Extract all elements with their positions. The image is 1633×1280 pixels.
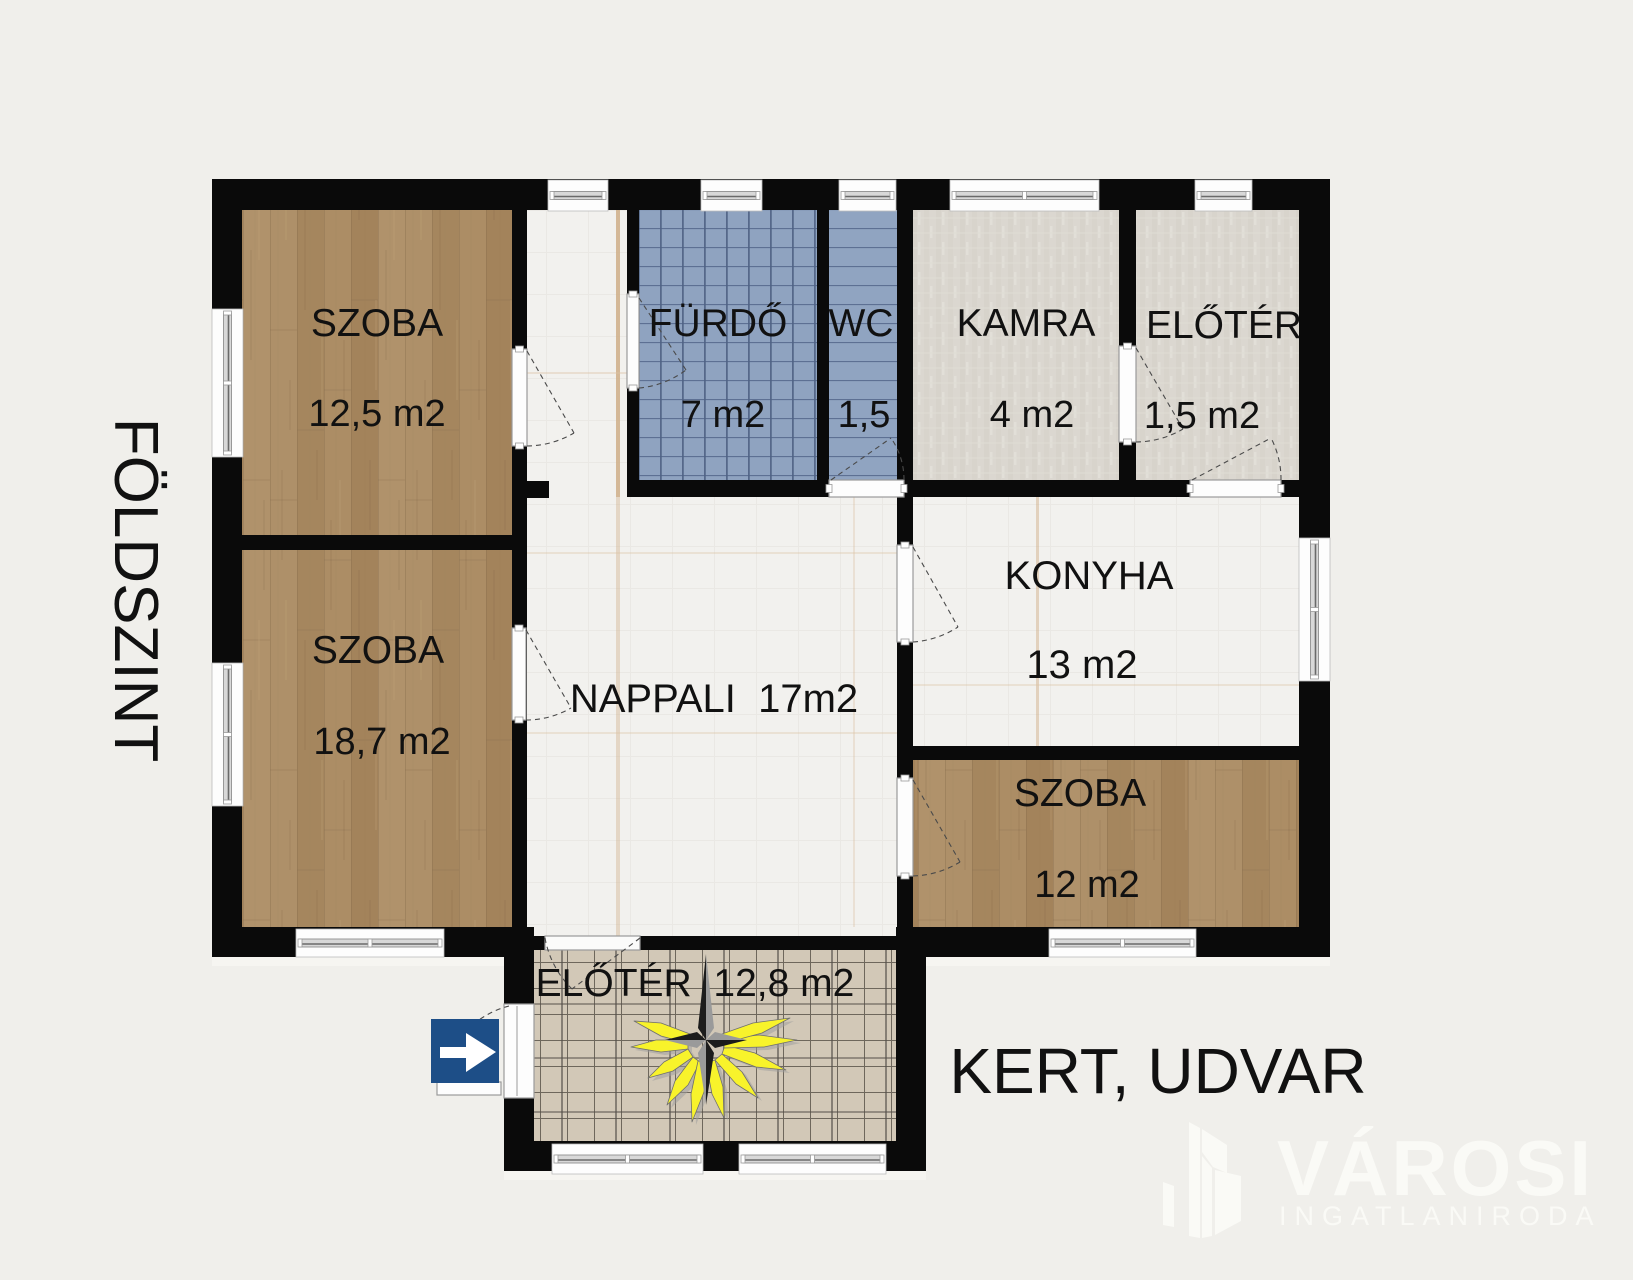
svg-text:KONYHA: KONYHA [1005,554,1174,598]
svg-text:7 m2: 7 m2 [681,394,765,436]
svg-text:VÁROSI: VÁROSI [1277,1124,1594,1212]
svg-text:KERT, UDVAR: KERT, UDVAR [949,1035,1366,1107]
svg-text:18,7 m2: 18,7 m2 [313,721,450,763]
svg-text:SZOBA: SZOBA [311,302,443,345]
svg-text:12,5 m2: 12,5 m2 [308,393,445,435]
svg-text:4 m2: 4 m2 [990,394,1074,436]
svg-text:SZOBA: SZOBA [1014,772,1146,815]
svg-text:NAPPALI 17m2: NAPPALI 17m2 [570,677,858,721]
svg-text:FÜRDŐ: FÜRDŐ [649,302,788,345]
svg-text:SZOBA: SZOBA [312,629,444,672]
svg-text:ELŐTÉR 12,8 m2: ELŐTÉR 12,8 m2 [536,962,855,1005]
svg-text:12 m2: 12 m2 [1034,864,1140,906]
svg-text:1,5: 1,5 [838,394,891,436]
svg-text:FÖLDSZINT: FÖLDSZINT [101,418,170,762]
svg-text:WC: WC [829,302,894,345]
svg-text:ELŐTÉR: ELŐTÉR [1146,304,1302,347]
svg-text:INGATLANIRODA: INGATLANIRODA [1279,1201,1602,1231]
svg-text:KAMRA: KAMRA [957,302,1096,345]
svg-text:1,5 m2: 1,5 m2 [1144,395,1260,437]
svg-text:13 m2: 13 m2 [1026,643,1137,687]
